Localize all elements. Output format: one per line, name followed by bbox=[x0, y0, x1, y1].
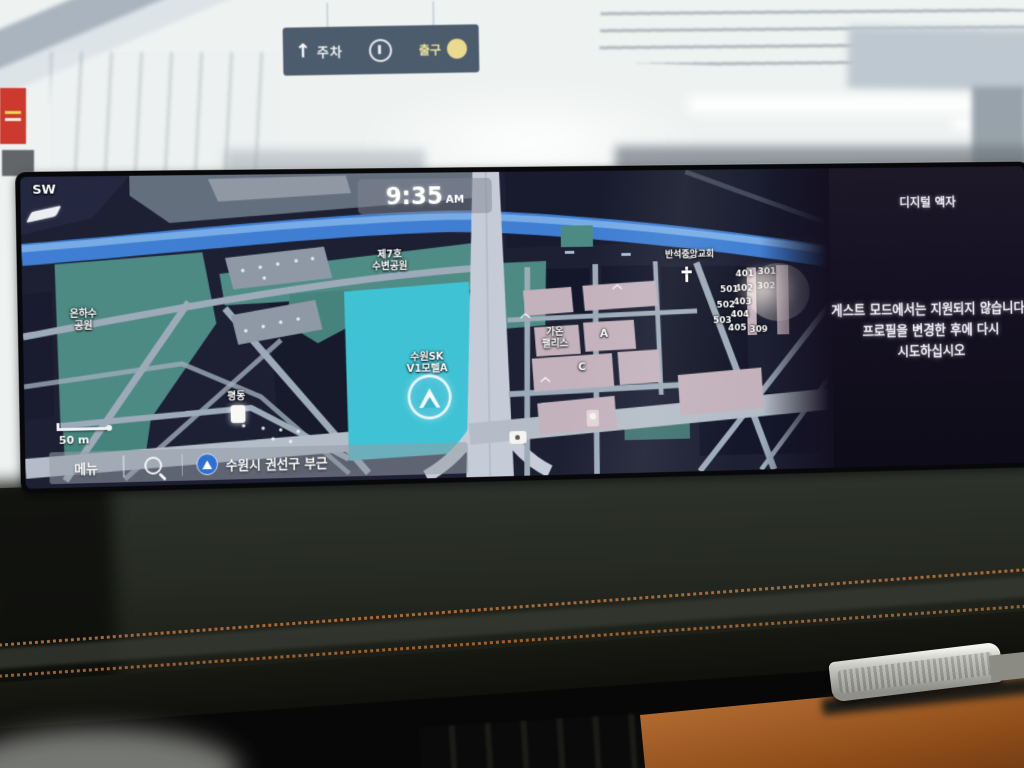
current-location-chip[interactable]: 수원시 권선구 부근 bbox=[196, 450, 328, 475]
building-numbers-layer: 401402403404405501502503301302309 bbox=[20, 168, 834, 488]
menu-button[interactable]: 메뉴 bbox=[49, 457, 123, 478]
current-location-label: 수원시 권선구 부근 bbox=[226, 452, 328, 473]
map-scale: 50 m bbox=[57, 427, 111, 447]
navigation-arrow-icon bbox=[419, 388, 440, 408]
guest-mode-message: 게스트 모드에서는 지원되지 않습니다. 프로필을 변경한 후에 다시 시도하십… bbox=[762, 296, 1024, 365]
scale-label: 50 m bbox=[59, 432, 111, 446]
red-wall-sign bbox=[0, 88, 26, 144]
sign-circle-icon bbox=[369, 38, 392, 61]
parking-guide-sign: ↑ 주차 출구 bbox=[283, 24, 480, 75]
sign-hanger-rod bbox=[432, 1, 434, 25]
infotainment-display-bezel: SW 9:35 AM 은하수 공원 제7호 수변공원 수원SK V1모텔A 평동… bbox=[15, 162, 1024, 494]
location-pin-icon bbox=[196, 453, 218, 475]
sign-up-arrow-icon: ↑ bbox=[295, 40, 311, 62]
sign-yellow-circle-icon bbox=[447, 39, 467, 59]
search-button[interactable] bbox=[124, 456, 181, 475]
bar-divider bbox=[181, 454, 183, 476]
road-sign-icon bbox=[587, 410, 600, 427]
map-label-layer: SW 9:35 AM 은하수 공원 제7호 수변공원 수원SK V1모텔A 평동… bbox=[20, 168, 834, 488]
building-number: 503 bbox=[713, 315, 732, 326]
sign-parking-label: 주차 bbox=[317, 41, 343, 60]
speed-camera-icon bbox=[509, 431, 526, 444]
sign-exit-label: 출구 bbox=[419, 40, 441, 57]
scale-bar bbox=[57, 427, 111, 431]
garage-ceiling-panel bbox=[847, 26, 1024, 91]
widget-title: 디지털 액자 bbox=[829, 191, 1024, 212]
search-icon bbox=[144, 456, 162, 474]
sign-hanger-rod bbox=[326, 3, 328, 27]
building-number: 502 bbox=[717, 299, 736, 310]
infotainment-screen[interactable]: SW 9:35 AM 은하수 공원 제7호 수변공원 수원SK V1모텔A 평동… bbox=[20, 166, 1024, 488]
photo-of-car-dashboard: ↑ 주차 출구 bbox=[0, 0, 1024, 768]
